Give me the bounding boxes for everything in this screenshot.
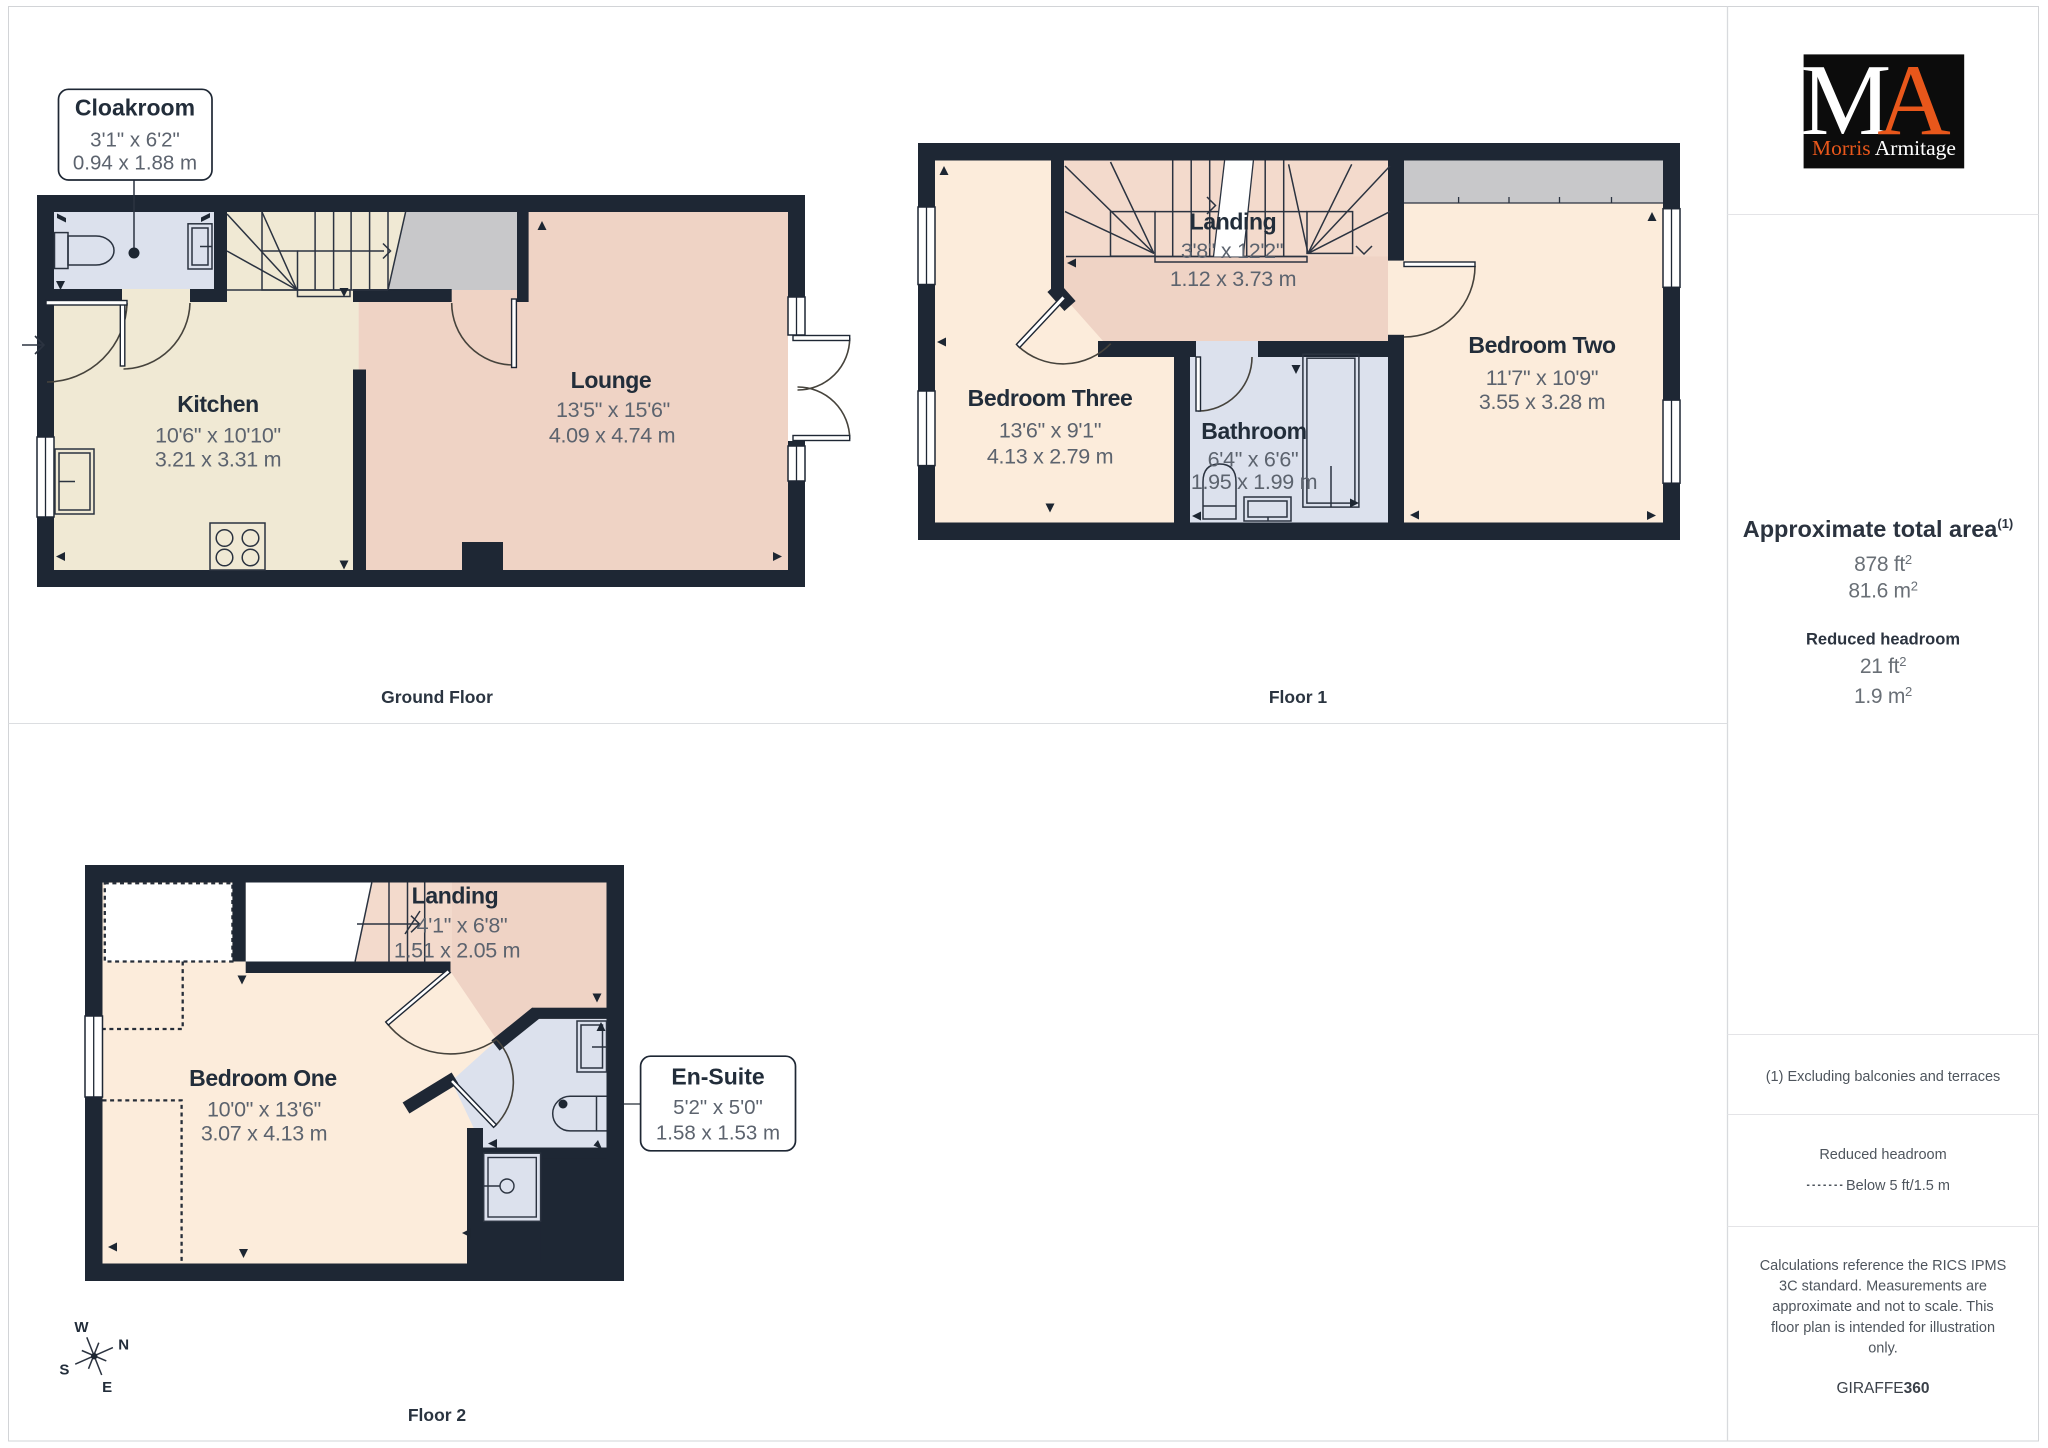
svg-text:6'4" x 6'6": 6'4" x 6'6" <box>1208 448 1299 472</box>
svg-text:11'7" x 10'9": 11'7" x 10'9" <box>1486 366 1598 390</box>
svg-text:Approximate total area(1): Approximate total area(1) <box>1743 516 2014 542</box>
svg-text:(1) Excluding balconies and te: (1) Excluding balconies and terraces <box>1766 1069 2001 1085</box>
svg-text:Landing: Landing <box>1190 209 1277 235</box>
svg-text:10'6" x 10'10": 10'6" x 10'10" <box>155 424 281 448</box>
svg-text:81.6 m2: 81.6 m2 <box>1848 579 1917 603</box>
svg-text:1.95 x 1.99 m: 1.95 x 1.99 m <box>1191 470 1317 494</box>
svg-text:En-Suite: En-Suite <box>671 1064 764 1090</box>
svg-text:3'8" x 12'2": 3'8" x 12'2" <box>1181 239 1283 263</box>
svg-text:4.13 x 2.79 m: 4.13 x 2.79 m <box>987 445 1113 469</box>
svg-text:Floor 2: Floor 2 <box>408 1405 467 1425</box>
svg-text:floor plan is intended for ill: floor plan is intended for illustration <box>1771 1320 1995 1336</box>
svg-text:1.51 x 2.05 m: 1.51 x 2.05 m <box>394 939 520 963</box>
svg-text:878 ft2: 878 ft2 <box>1854 552 1912 576</box>
svg-text:Bathroom: Bathroom <box>1201 418 1306 444</box>
svg-text:Kitchen: Kitchen <box>177 391 259 417</box>
svg-text:GIRAFFE360: GIRAFFE360 <box>1836 1380 1929 1397</box>
svg-text:approximate and not to scale.: approximate and not to scale. This <box>1772 1299 1993 1315</box>
svg-text:13'6" x 9'1": 13'6" x 9'1" <box>999 419 1101 443</box>
svg-text:S: S <box>59 1362 69 1379</box>
svg-text:3.07 x 4.13 m: 3.07 x 4.13 m <box>201 1122 327 1146</box>
svg-text:1.12 x 3.73 m: 1.12 x 3.73 m <box>1170 267 1296 291</box>
svg-text:Reduced headroom: Reduced headroom <box>1819 1147 1946 1163</box>
svg-text:Landing: Landing <box>412 883 499 909</box>
svg-text:3C standard. Measurements are: 3C standard. Measurements are <box>1779 1279 1987 1295</box>
svg-text:N: N <box>118 1337 129 1354</box>
svg-text:3'1" x 6'2": 3'1" x 6'2" <box>90 129 180 152</box>
svg-text:only.: only. <box>1868 1340 1898 1356</box>
svg-text:Bedroom Three: Bedroom Three <box>968 385 1133 411</box>
svg-text:Ground Floor: Ground Floor <box>381 687 493 707</box>
svg-text:Cloakroom: Cloakroom <box>75 95 195 121</box>
svg-text:1.9 m2: 1.9 m2 <box>1854 684 1912 708</box>
svg-text:Reduced headroom: Reduced headroom <box>1806 630 1960 648</box>
svg-text:4'1" x 6'8": 4'1" x 6'8" <box>417 914 508 938</box>
svg-text:3.21 x 3.31 m: 3.21 x 3.31 m <box>155 448 281 472</box>
svg-text:Bedroom Two: Bedroom Two <box>1468 332 1616 358</box>
svg-text:3.55 x 3.28 m: 3.55 x 3.28 m <box>1479 390 1605 414</box>
svg-text:Morris Armitage: Morris Armitage <box>1812 136 1956 160</box>
svg-text:Floor 1: Floor 1 <box>1269 687 1328 707</box>
svg-text:0.94 x 1.88 m: 0.94 x 1.88 m <box>73 151 197 174</box>
svg-text:10'0" x 13'6": 10'0" x 13'6" <box>207 1098 321 1122</box>
svg-text:4.09 x 4.74 m: 4.09 x 4.74 m <box>549 424 675 448</box>
svg-text:E: E <box>102 1379 112 1396</box>
svg-text:Lounge: Lounge <box>571 367 652 393</box>
svg-text:Below 5 ft/1.5 m: Below 5 ft/1.5 m <box>1846 1178 1950 1194</box>
svg-text:Calculations reference the RIC: Calculations reference the RICS IPMS <box>1760 1258 2007 1274</box>
svg-text:13'5" x 15'6": 13'5" x 15'6" <box>556 398 670 422</box>
svg-text:Bedroom One: Bedroom One <box>189 1065 337 1091</box>
svg-text:W: W <box>74 1319 89 1336</box>
svg-text:5'2" x 5'0": 5'2" x 5'0" <box>673 1096 763 1119</box>
svg-text:1.58 x 1.53 m: 1.58 x 1.53 m <box>656 1121 780 1144</box>
